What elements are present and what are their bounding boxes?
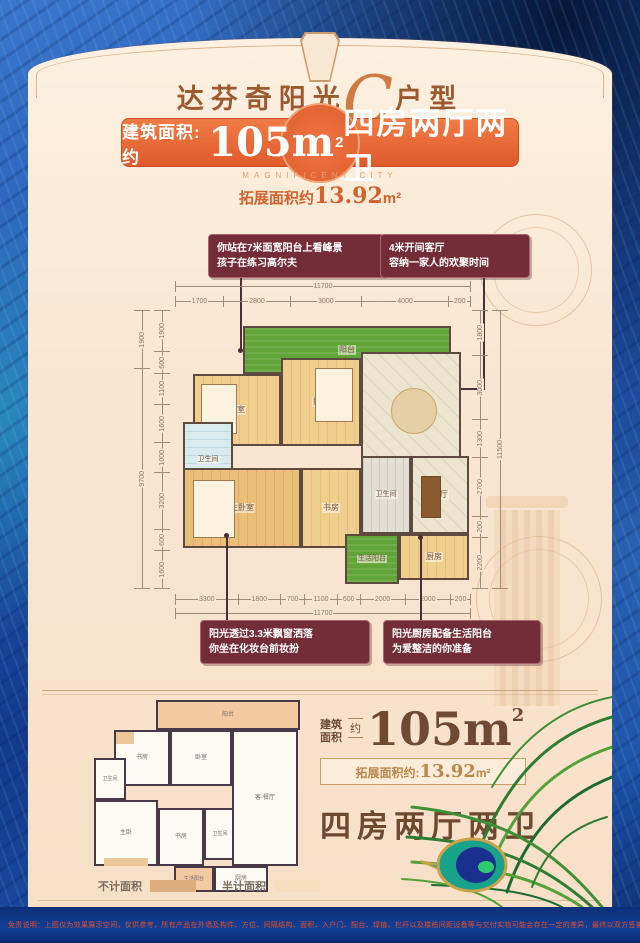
disclaimer-text: 免责说明：上图仅为效果展示空间，仅供参考，所有产品在外墙及构件、方位、间隔结构、… (8, 920, 632, 930)
callout-livingroom: 4米开间客厅 容纳一家人的欢聚时间 (380, 234, 530, 278)
english-caption: MAGNIFICENT CITY (28, 171, 612, 180)
area-legend: 不计面积 半计面积 (98, 878, 320, 894)
dim-row-top-overall: 11700 (175, 281, 471, 292)
room-living: 客厅 (361, 352, 461, 460)
dining-table-furniture (421, 476, 441, 518)
legend-no-area-swatch (150, 880, 196, 892)
spec-block: 建筑 面积 约 105m2 拓展面积约:13.92m² 四房两厅两卫 (320, 706, 560, 846)
main-floorplan: 阳台 卧室 卧室 客厅 卫生间 主卧室 书房 (175, 310, 470, 588)
callout-kitchen-balcony: 阳光厨房配备生活阳台 为爱整洁的你准备 (383, 620, 541, 664)
rug-furniture (391, 388, 437, 434)
room-master-bedroom: 主卧室 (183, 468, 301, 548)
connector-line (420, 538, 422, 620)
callout-balcony: 你站在7米面宽阳台上看峰景 孩子在练习高尔夫 (208, 234, 384, 278)
banner-area-label: 建筑面积:约 (122, 118, 207, 168)
dim-col-left-segments: 1900 600 1100 1600 1000 3200 600 1600 (154, 310, 170, 589)
section-divider (42, 690, 598, 695)
room-bedroom2: 卧室 (281, 358, 361, 446)
dim-col-right-overall: 11500 (492, 310, 508, 589)
card-bottom-border (38, 900, 602, 901)
banner-area-sup: 2 (335, 134, 343, 151)
mini-baywindow-swatch (116, 732, 134, 744)
spec-area-value: 105m2 (367, 706, 524, 752)
mini-floorplan: 阳台 书房 卧室 卫生间 主卧 书房 卫生间 客·餐厅 生活阳台 厨房 (90, 700, 302, 892)
spec-expand-box: 拓展面积约:13.92m² (320, 758, 526, 785)
dim-row-bottom-overall: 11700 (175, 608, 471, 619)
bed-furniture (193, 480, 235, 538)
room-bathroom2: 卫生间 (361, 456, 411, 534)
dim-col-right-segments: 1800 3000 1300 2700 200 2200 (472, 310, 488, 589)
mini-room-bath1: 卫生间 (94, 758, 126, 800)
mini-room-master: 主卧 (94, 800, 158, 866)
legend-no-area-label: 不计面积 (98, 878, 142, 894)
room-kitchen: 厨房 (399, 534, 469, 580)
mini-room-study2: 书房 (158, 808, 204, 866)
spec-area-row: 建筑 面积 约 105m2 (320, 706, 560, 752)
area-banner: 建筑面积:约 105m 2 四房两厅两卫 (121, 118, 519, 167)
room-life-balcony: 生活阳台 (345, 534, 399, 584)
spec-rooms-text: 四房两厅两卫 (320, 801, 560, 846)
disclaimer-bar: 免责说明：上图仅为效果展示空间，仅供参考，所有产品在外墙及构件、方位、间隔结构、… (0, 907, 640, 943)
connector-dot (418, 535, 423, 540)
dim-row-bottom-segments: 3300 1800 700 1100 600 2000 2000 200 (175, 594, 471, 605)
callout-baywindow: 阳光透过3.3米飘窗洒落 你坐在化妆台前妆扮 (200, 620, 370, 664)
legend-half-area-swatch (274, 880, 320, 892)
connector-dot (224, 533, 229, 538)
banner-area-value: 105m (208, 123, 334, 163)
dim-col-left-outer: 1900 9700 (134, 310, 150, 589)
room-dining: 餐厅 (411, 456, 469, 534)
dim-row-top-segments: 1700 2800 3000 4000 200 (175, 296, 471, 307)
legend-half-area-label: 半计面积 (222, 878, 266, 894)
mini-room-bedroom: 卧室 (170, 730, 232, 786)
connector-line (226, 536, 228, 620)
approx-label: 约 (348, 718, 363, 738)
expand-area-line: 拓展面积约13.92m² (28, 183, 612, 209)
mini-room-balcony: 阳台 (156, 700, 300, 730)
main-card: 达芬奇阳光 C 户型 建筑面积:约 105m 2 四房两厅两卫 MAGNIFIC… (28, 38, 612, 907)
floorplan-poster: 达芬奇阳光 C 户型 建筑面积:约 105m 2 四房两厅两卫 MAGNIFIC… (0, 0, 640, 943)
mini-baywindow-swatch (104, 858, 148, 866)
mini-room-living-dining: 客·餐厅 (232, 730, 298, 866)
bed-furniture (315, 368, 353, 422)
